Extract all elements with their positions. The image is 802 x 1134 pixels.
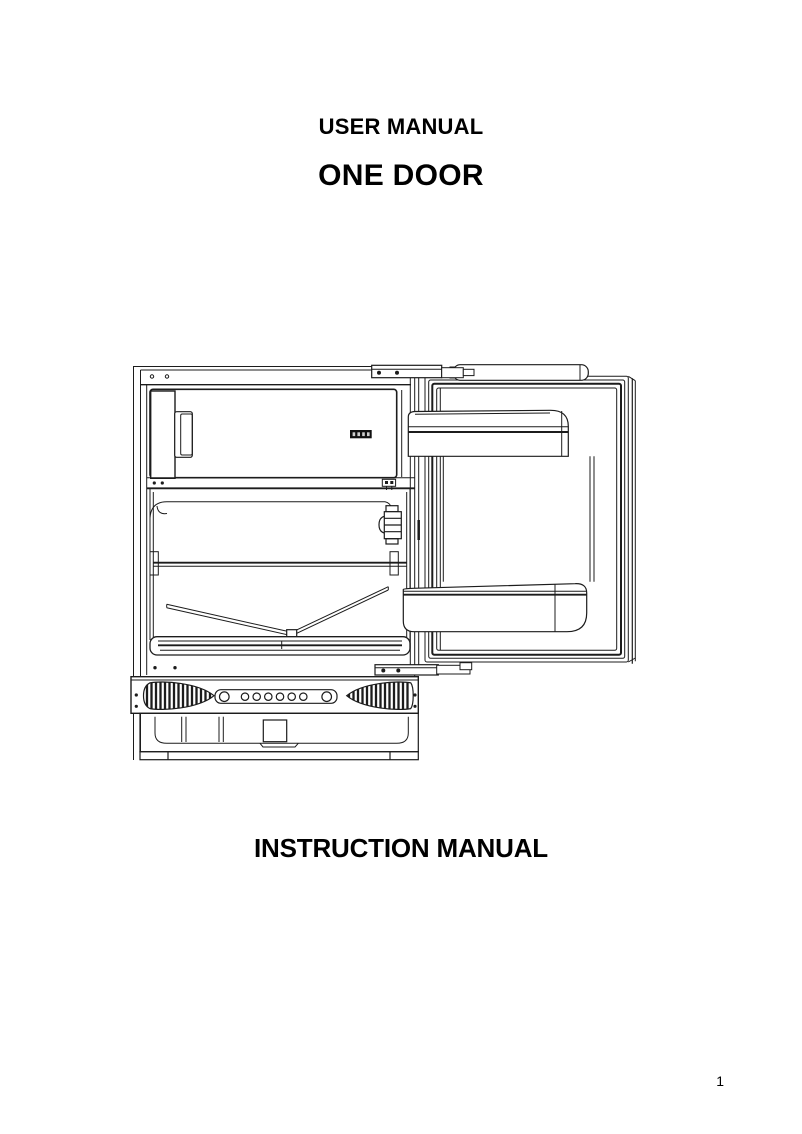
thermostat-housing	[379, 506, 401, 544]
header-title: USER MANUAL	[0, 116, 802, 138]
refrigerator-figure	[130, 353, 645, 765]
refrigerator-line-drawing	[130, 353, 645, 765]
base-strip	[140, 752, 418, 760]
plinth-drawer	[140, 713, 418, 751]
crisper-cover	[167, 587, 389, 639]
glass-shelf	[150, 552, 407, 575]
control-panel-display	[350, 430, 372, 438]
door-upper-balcony	[408, 410, 568, 456]
door-lower-balcony	[403, 584, 586, 632]
door-sill	[150, 637, 410, 655]
freezer-door-handle	[175, 412, 193, 458]
vent-hole-strip	[215, 690, 337, 704]
bottom-hinge	[375, 663, 472, 675]
manual-cover-page: USER MANUAL ONE DOOR	[0, 0, 802, 1134]
compartment-divider	[147, 478, 415, 490]
footer-title: INSTRUCTION MANUAL	[0, 835, 802, 861]
main-compartment	[150, 488, 410, 640]
product-title: ONE DOOR	[0, 161, 802, 191]
ventilation-grille	[131, 677, 418, 714]
page-number: 1	[716, 1074, 724, 1088]
